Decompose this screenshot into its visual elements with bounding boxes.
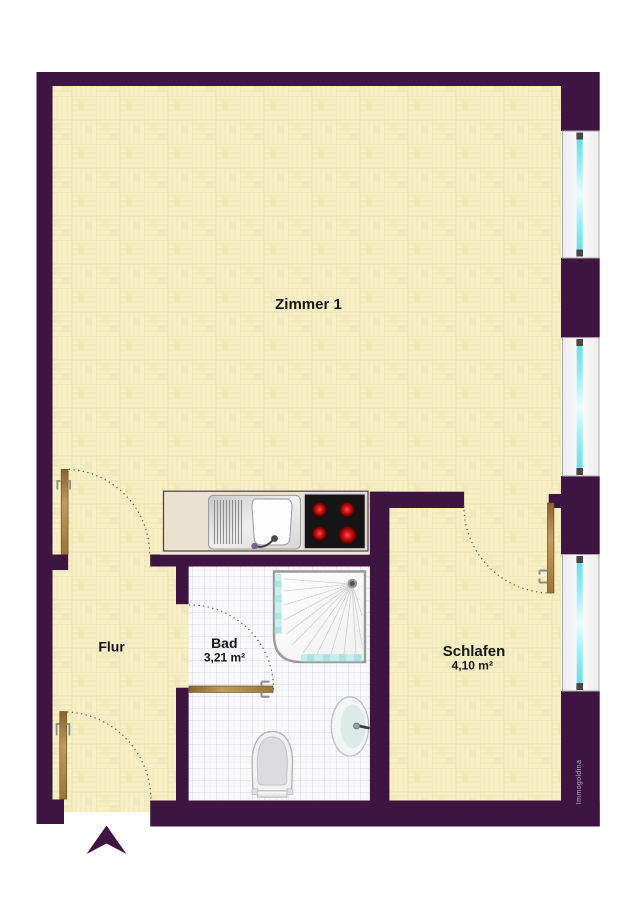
svg-text:Schlafen: Schlafen bbox=[443, 643, 506, 660]
svg-text:4,10 m²: 4,10 m² bbox=[452, 659, 493, 673]
svg-text:Flur: Flur bbox=[98, 639, 125, 655]
svg-text:Immogoldina: Immogoldina bbox=[576, 760, 583, 804]
svg-text:Bad: Bad bbox=[211, 635, 237, 651]
svg-text:3,21 m²: 3,21 m² bbox=[204, 650, 245, 664]
svg-text:Zimmer 1: Zimmer 1 bbox=[275, 296, 342, 313]
